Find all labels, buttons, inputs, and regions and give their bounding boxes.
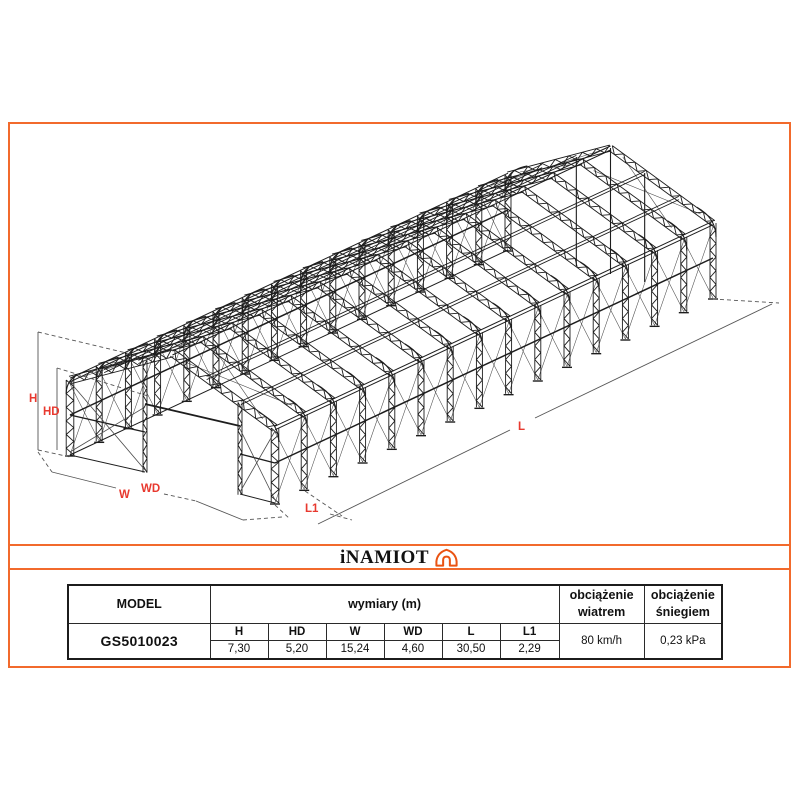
dim-col-l: L	[442, 623, 500, 640]
wind-header-cell: obciążenie wiatrem	[559, 585, 644, 623]
wind-value-cell: 80 km/h	[559, 623, 644, 659]
table-header-row: MODEL wymiary (m) obciążenie wiatrem obc…	[68, 585, 722, 623]
logo-band: iNAMIOT	[8, 546, 791, 568]
tent-icon	[434, 547, 459, 568]
dim-col-w: W	[326, 623, 384, 640]
spec-table: MODEL wymiary (m) obciążenie wiatrem obc…	[67, 584, 723, 660]
brand-name: iNAMIOT	[340, 548, 429, 567]
model-header-cell: MODEL	[68, 585, 210, 623]
snow-value-cell: 0,23 kPa	[644, 623, 722, 659]
dim-val-wd: 4,60	[384, 640, 442, 659]
dim-val-l: 30,50	[442, 640, 500, 659]
logo-band-bottom-divider	[8, 568, 791, 570]
dim-col-wd: WD	[384, 623, 442, 640]
dims-header-cell: wymiary (m)	[210, 585, 559, 623]
dim-col-h: H	[210, 623, 268, 640]
model-value-cell: GS5010023	[68, 623, 210, 659]
snow-header-cell: obciążenie śniegiem	[644, 585, 722, 623]
dim-val-w: 15,24	[326, 640, 384, 659]
dim-val-l1: 2,29	[500, 640, 559, 659]
dim-val-h: 7,30	[210, 640, 268, 659]
dim-col-hd: HD	[268, 623, 326, 640]
dim-col-l1: L1	[500, 623, 559, 640]
table-dim-label-row: GS5010023 H HD W WD L L1 80 km/h 0,23 kP…	[68, 623, 722, 640]
dim-val-hd: 5,20	[268, 640, 326, 659]
